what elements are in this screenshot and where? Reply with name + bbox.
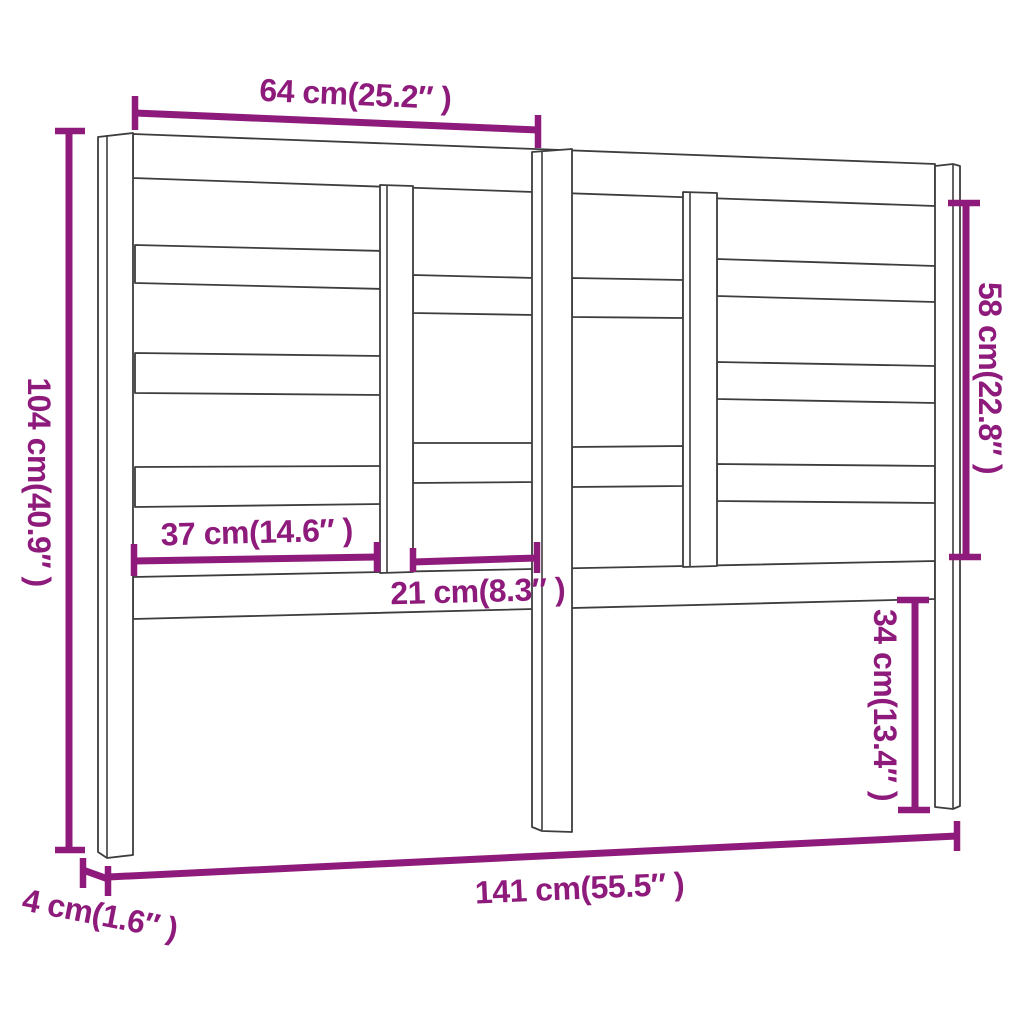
dimension-label-37cm: 37 cm(14.6″ ) bbox=[160, 511, 353, 552]
slat bbox=[717, 464, 935, 503]
dimension-overall-width: 141 cm(55.5″ ) bbox=[108, 821, 957, 911]
slat bbox=[135, 245, 385, 289]
slat bbox=[135, 353, 385, 395]
dimension-right-leg-height: 34 cm(13.4″ ) bbox=[867, 600, 930, 810]
dimension-label-58cm: 58 cm(22.8″ ) bbox=[972, 282, 1008, 474]
slat bbox=[572, 446, 683, 487]
dimension-label-104cm: 104 cm(40.9″ ) bbox=[21, 377, 57, 586]
diagram-canvas: 64 cm(25.2″ ) 104 cm(40.9″ ) 58 cm(22.8″… bbox=[0, 0, 1024, 1024]
slat bbox=[135, 466, 385, 507]
dimension-center-opening-width: 21 cm(8.3″ ) bbox=[390, 542, 566, 611]
dimension-overall-height: 104 cm(40.9″ ) bbox=[21, 131, 85, 850]
slat bbox=[717, 362, 935, 403]
dimension-label-141cm: 141 cm(55.5″ ) bbox=[474, 865, 685, 910]
dimension-label-4cm: 4 cm(1.6″ ) bbox=[19, 882, 180, 947]
dimension-line bbox=[135, 113, 538, 130]
dimension-line bbox=[413, 558, 537, 562]
slat bbox=[717, 259, 935, 302]
dimension-label-21cm: 21 cm(8.3″ ) bbox=[390, 571, 566, 612]
headboard-dimension-diagram: 64 cm(25.2″ ) 104 cm(40.9″ ) 58 cm(22.8″… bbox=[0, 0, 1024, 1024]
dimension-line bbox=[83, 870, 108, 879]
dimension-left-opening-width: 37 cm(14.6″ ) bbox=[134, 511, 377, 576]
vertical-divider bbox=[683, 192, 717, 567]
slat bbox=[572, 278, 683, 318]
dimension-label-34cm: 34 cm(13.4″ ) bbox=[867, 609, 903, 801]
slat bbox=[413, 275, 535, 315]
headboard-drawing bbox=[98, 133, 960, 858]
dimension-line bbox=[108, 836, 957, 877]
vertical-divider bbox=[380, 185, 413, 573]
right-post bbox=[935, 164, 960, 809]
dimension-line bbox=[134, 557, 377, 561]
left-post bbox=[98, 133, 133, 858]
slat bbox=[413, 443, 535, 483]
middle-post bbox=[532, 149, 572, 832]
dimension-label-64cm: 64 cm(25.2″ ) bbox=[259, 72, 452, 116]
